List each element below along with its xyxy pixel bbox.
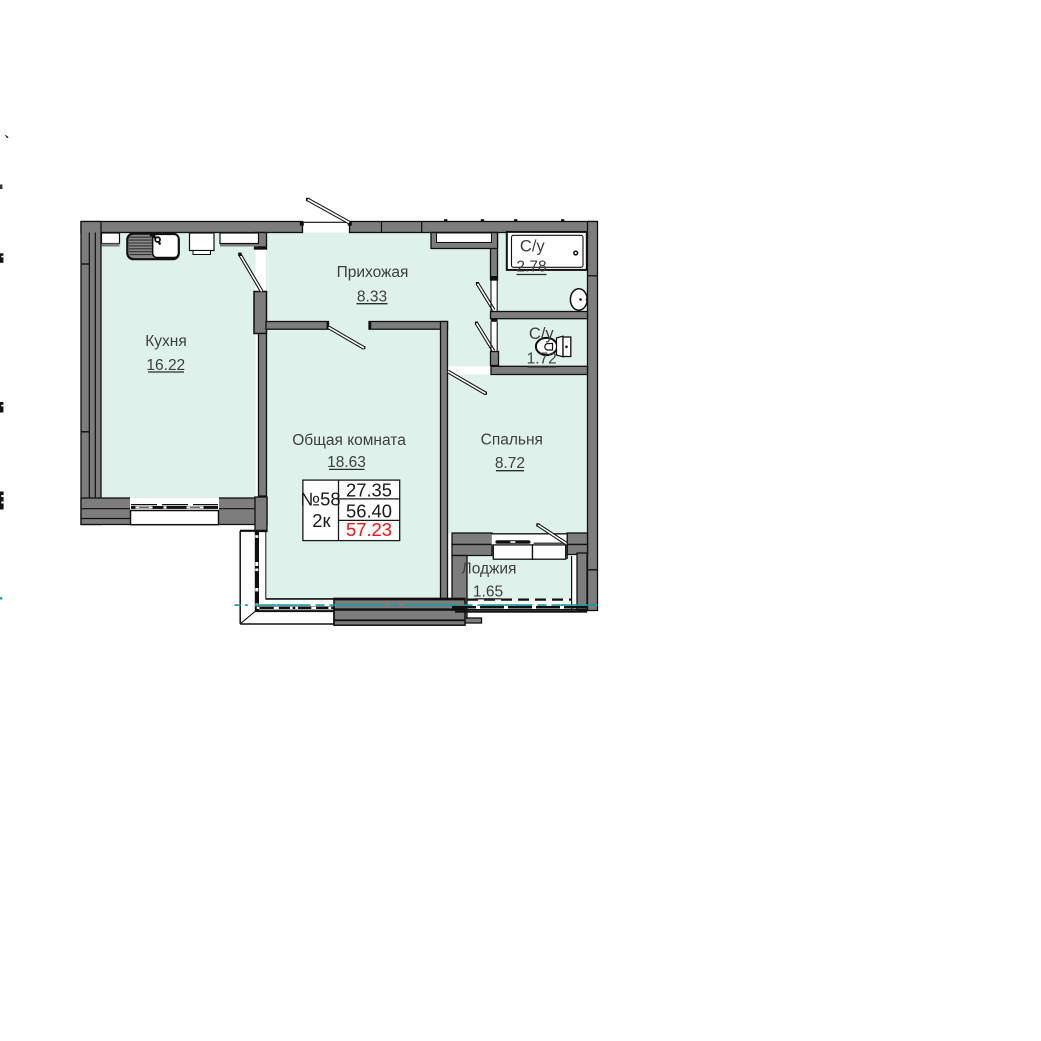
svg-text:57.23: 57.23: [346, 519, 392, 540]
svg-text:2к: 2к: [312, 510, 331, 531]
svg-text:С/у: С/у: [529, 325, 555, 343]
svg-text:27.35: 27.35: [346, 479, 392, 500]
svg-text:18.63: 18.63: [327, 454, 366, 471]
svg-text:Лоджия: Лоджия: [462, 561, 517, 578]
svg-text:8.33: 8.33: [357, 289, 387, 306]
svg-text:8.72: 8.72: [495, 455, 525, 472]
svg-text:С/у: С/у: [520, 237, 546, 255]
svg-text:1.72: 1.72: [527, 350, 557, 367]
svg-text:Кухня: Кухня: [145, 333, 186, 350]
svg-text:Прихожая: Прихожая: [337, 264, 409, 281]
svg-text:Общая комната: Общая комната: [292, 432, 406, 449]
svg-text:Спальня: Спальня: [481, 432, 543, 449]
svg-text:№58: №58: [300, 489, 340, 510]
svg-text:2.78: 2.78: [516, 258, 546, 275]
svg-text:1.65: 1.65: [473, 584, 503, 601]
